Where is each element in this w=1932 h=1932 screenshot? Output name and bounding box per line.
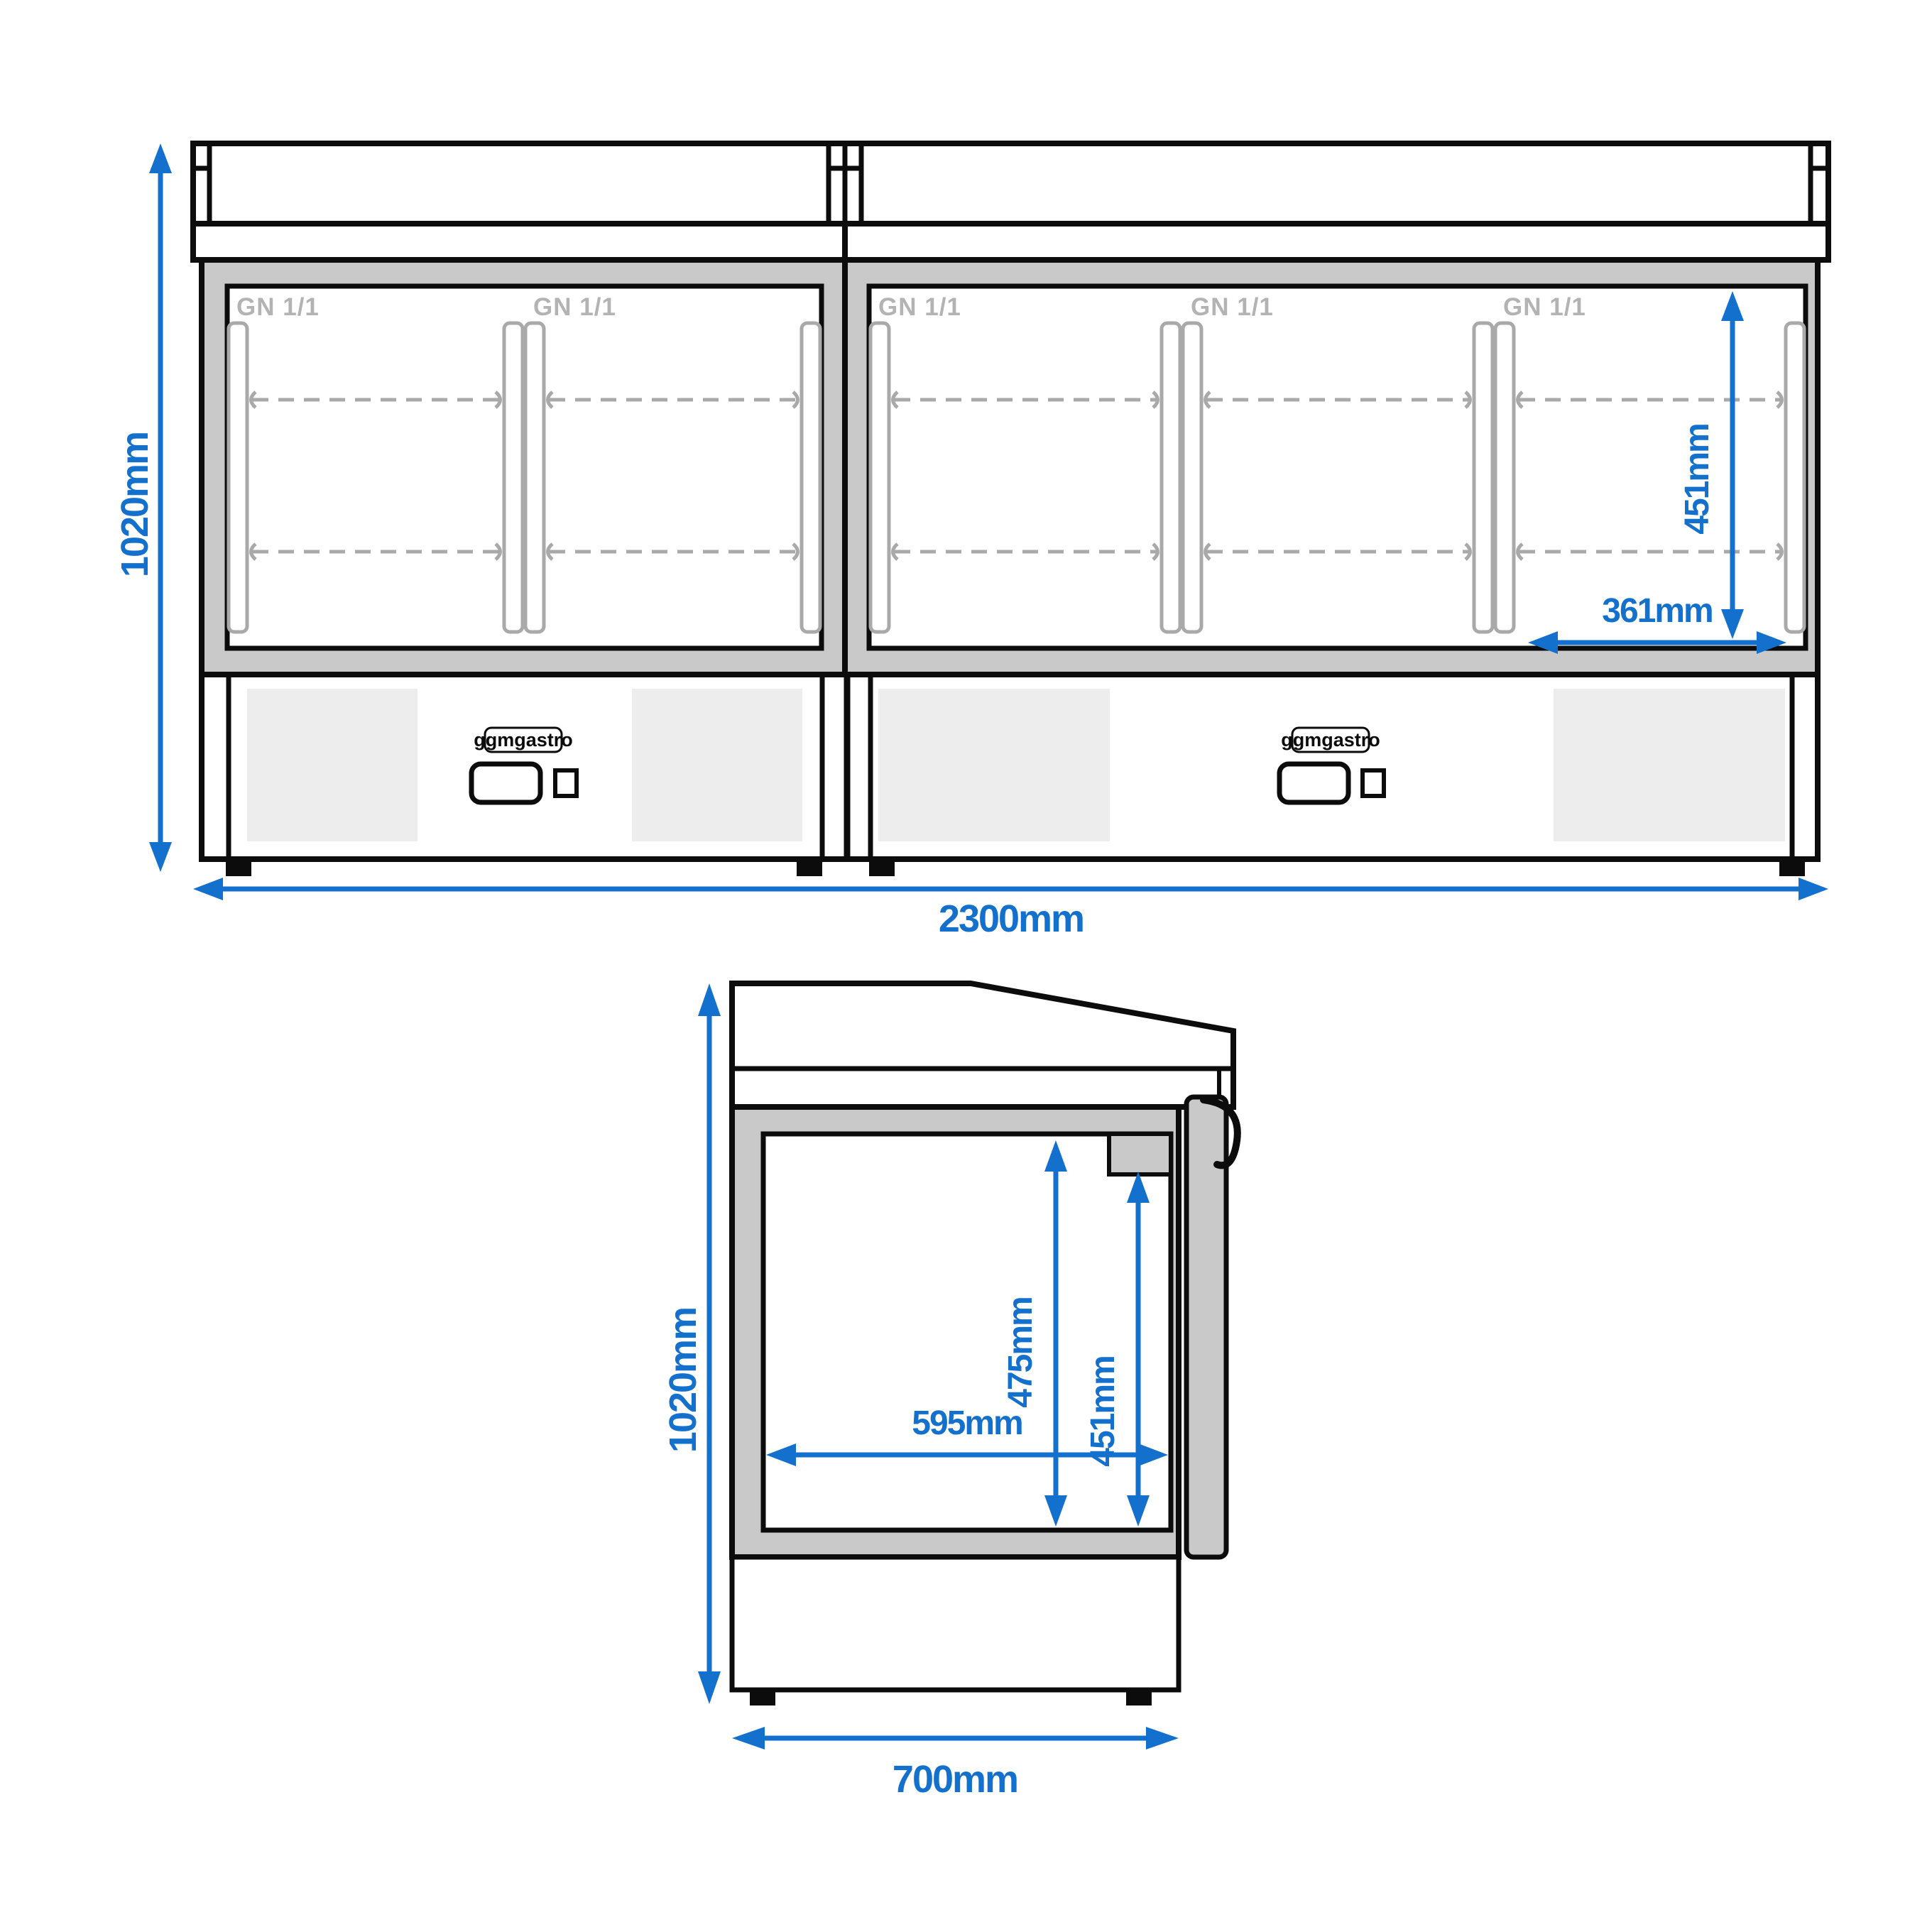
- front-glass-section: GN 1/1 GN 1/1: [202, 260, 1818, 675]
- dim-label: 475mm: [1002, 1297, 1039, 1407]
- dim-label: 700mm: [893, 1758, 1017, 1801]
- gn-label: GN 1/1: [533, 293, 616, 321]
- gn-label: GN 1/1: [878, 293, 961, 321]
- power-switch[interactable]: [1363, 770, 1384, 796]
- dim-front-width: 2300mm: [193, 878, 1828, 940]
- canopy-lower-band: [193, 224, 1828, 260]
- door-rail-left: [871, 323, 889, 632]
- dim-side-height: 1020mm: [662, 983, 721, 1704]
- front-view: GN 1/1 GN 1/1: [114, 143, 1828, 940]
- foot: [869, 861, 895, 876]
- gn-label: GN 1/1: [1503, 293, 1586, 321]
- vent-panel: [632, 689, 802, 841]
- foot: [226, 861, 251, 876]
- side-body: [732, 1097, 1238, 1705]
- door-rail-right: [1474, 323, 1492, 632]
- dim-side-depth: 700mm: [732, 1727, 1179, 1801]
- side-interior: [763, 1134, 1171, 1530]
- brand-logo-text: ggmgastro: [474, 729, 573, 751]
- side-lower-box: [732, 1557, 1179, 1690]
- arrowhead-right: [1799, 878, 1828, 900]
- foot: [1126, 1690, 1152, 1705]
- gn-label: GN 1/1: [1191, 293, 1274, 321]
- arrowhead-up: [698, 983, 721, 1016]
- dim-label: 361mm: [1602, 592, 1712, 630]
- controller-display[interactable]: [1279, 764, 1348, 802]
- door-rail-left: [229, 323, 247, 632]
- dim-front-height: 1020mm: [114, 143, 172, 872]
- dim-label: 1020mm: [114, 432, 156, 577]
- door-rail-left: [1495, 323, 1514, 632]
- side-view: 1020mm 475mm 451mm 595mm 700mm: [662, 983, 1238, 1801]
- door-rail-right: [802, 323, 820, 632]
- arrowhead-down: [149, 842, 172, 872]
- dim-label: 451mm: [1679, 424, 1716, 534]
- door-rail-right: [1162, 323, 1180, 632]
- door-rail-right: [1786, 323, 1804, 632]
- dim-label: 595mm: [912, 1404, 1022, 1442]
- door-rail-left: [1183, 323, 1201, 632]
- foot: [1779, 861, 1805, 876]
- power-switch[interactable]: [555, 770, 577, 796]
- canopy-outline: [193, 143, 1828, 224]
- dim-label: 1020mm: [662, 1308, 704, 1453]
- dim-label: 451mm: [1084, 1356, 1122, 1466]
- brand-logo-text: ggmgastro: [1281, 729, 1380, 751]
- arrowhead-up: [149, 143, 172, 173]
- dim-label: 2300mm: [939, 897, 1084, 940]
- door-rail-left: [525, 323, 544, 632]
- foot: [750, 1690, 775, 1705]
- vent-panel: [1554, 689, 1785, 841]
- arrowhead-down: [698, 1671, 721, 1704]
- vent-panel: [247, 689, 417, 841]
- arrowhead-left: [732, 1727, 765, 1750]
- technical-drawing-canvas: GN 1/1 GN 1/1: [0, 0, 1932, 1932]
- refrigerated-counter-drawing: GN 1/1 GN 1/1: [0, 0, 1932, 1932]
- foot: [797, 861, 822, 876]
- arrowhead-right: [1146, 1727, 1179, 1750]
- controller-display[interactable]: [471, 764, 540, 802]
- canopy-profile: [732, 983, 1233, 1107]
- door-rail-right: [504, 323, 523, 632]
- gn-label: GN 1/1: [236, 293, 320, 321]
- arrowhead-left: [193, 878, 223, 900]
- front-lower-section: ggmgastro ggmgastro: [202, 675, 1818, 876]
- side-canopy: [732, 983, 1233, 1107]
- side-top-notch: [1109, 1134, 1171, 1174]
- front-canopy: [193, 143, 1828, 260]
- vent-panel: [878, 689, 1110, 841]
